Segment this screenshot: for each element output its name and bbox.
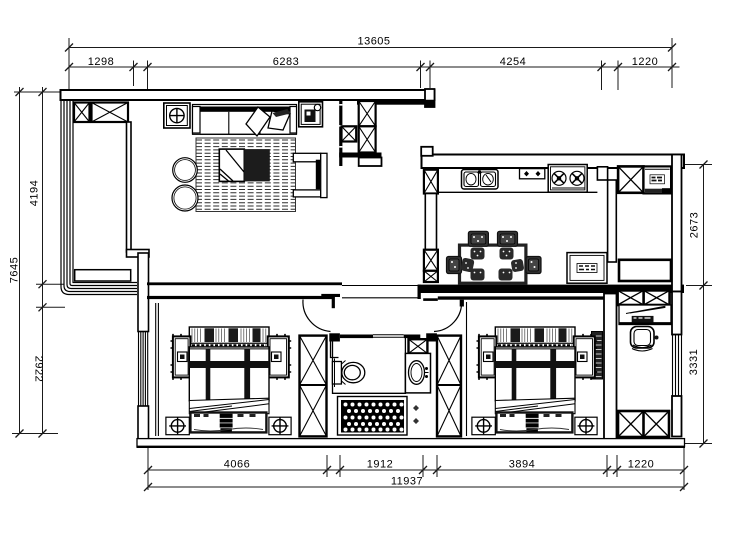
- svg-text:6283: 6283: [273, 56, 299, 68]
- svg-text:3894: 3894: [509, 459, 535, 471]
- svg-text:1298: 1298: [88, 56, 114, 68]
- svg-text:4066: 4066: [224, 459, 250, 471]
- svg-text:1220: 1220: [628, 459, 654, 471]
- svg-text:1912: 1912: [367, 459, 393, 471]
- svg-text:3331: 3331: [688, 349, 700, 375]
- svg-text:4254: 4254: [500, 56, 526, 68]
- svg-text:7645: 7645: [9, 257, 21, 283]
- svg-text:2922: 2922: [33, 356, 45, 382]
- svg-text:1220: 1220: [632, 56, 658, 68]
- svg-text:4194: 4194: [29, 180, 41, 206]
- svg-text:2673: 2673: [689, 212, 701, 238]
- svg-text:13605: 13605: [357, 36, 390, 48]
- svg-text:11937: 11937: [391, 476, 423, 488]
